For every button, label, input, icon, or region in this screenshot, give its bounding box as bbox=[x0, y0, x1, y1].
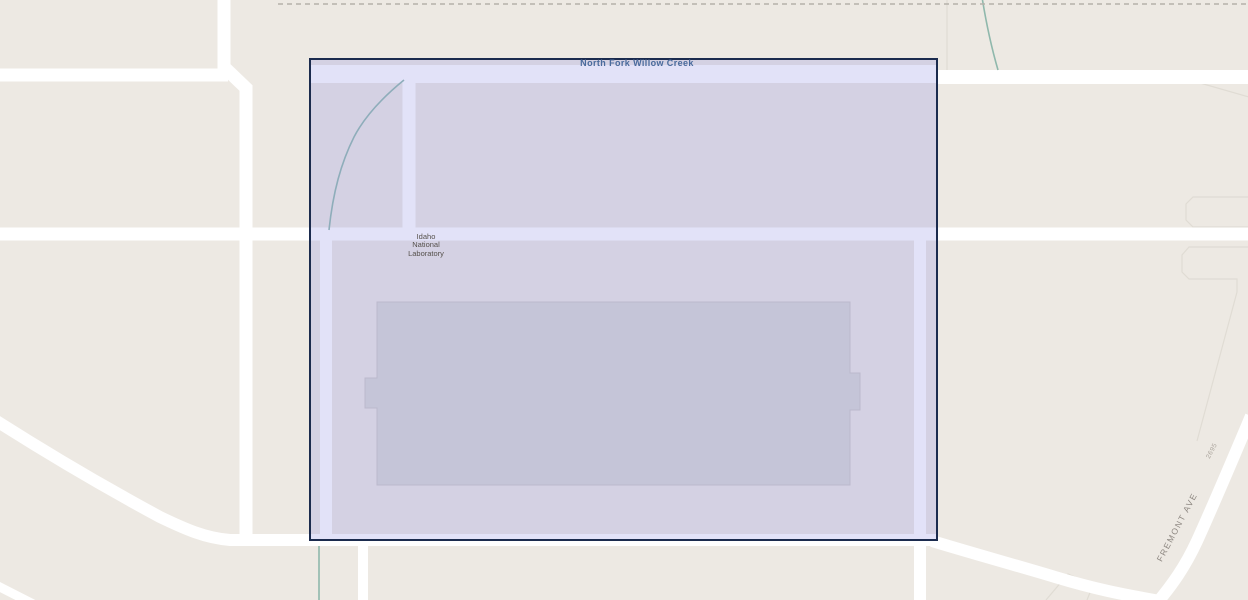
creek-line-north bbox=[982, 0, 998, 70]
road-fremont-ave bbox=[1157, 416, 1248, 600]
creek-label: North Fork Willow Creek bbox=[580, 58, 694, 68]
road-southeast-curve bbox=[932, 541, 1160, 600]
map-canvas[interactable]: North Fork Willow Creek Idaho National L… bbox=[0, 0, 1248, 600]
road-corner-stub bbox=[0, 584, 45, 600]
facility-label: Idaho National Laboratory bbox=[408, 233, 444, 258]
selection-rectangle[interactable] bbox=[309, 58, 938, 541]
parcel-line bbox=[1182, 247, 1248, 441]
parcel-line bbox=[1186, 197, 1248, 227]
parcel-line bbox=[1200, 83, 1248, 97]
facility-label-line3: Laboratory bbox=[408, 250, 444, 258]
